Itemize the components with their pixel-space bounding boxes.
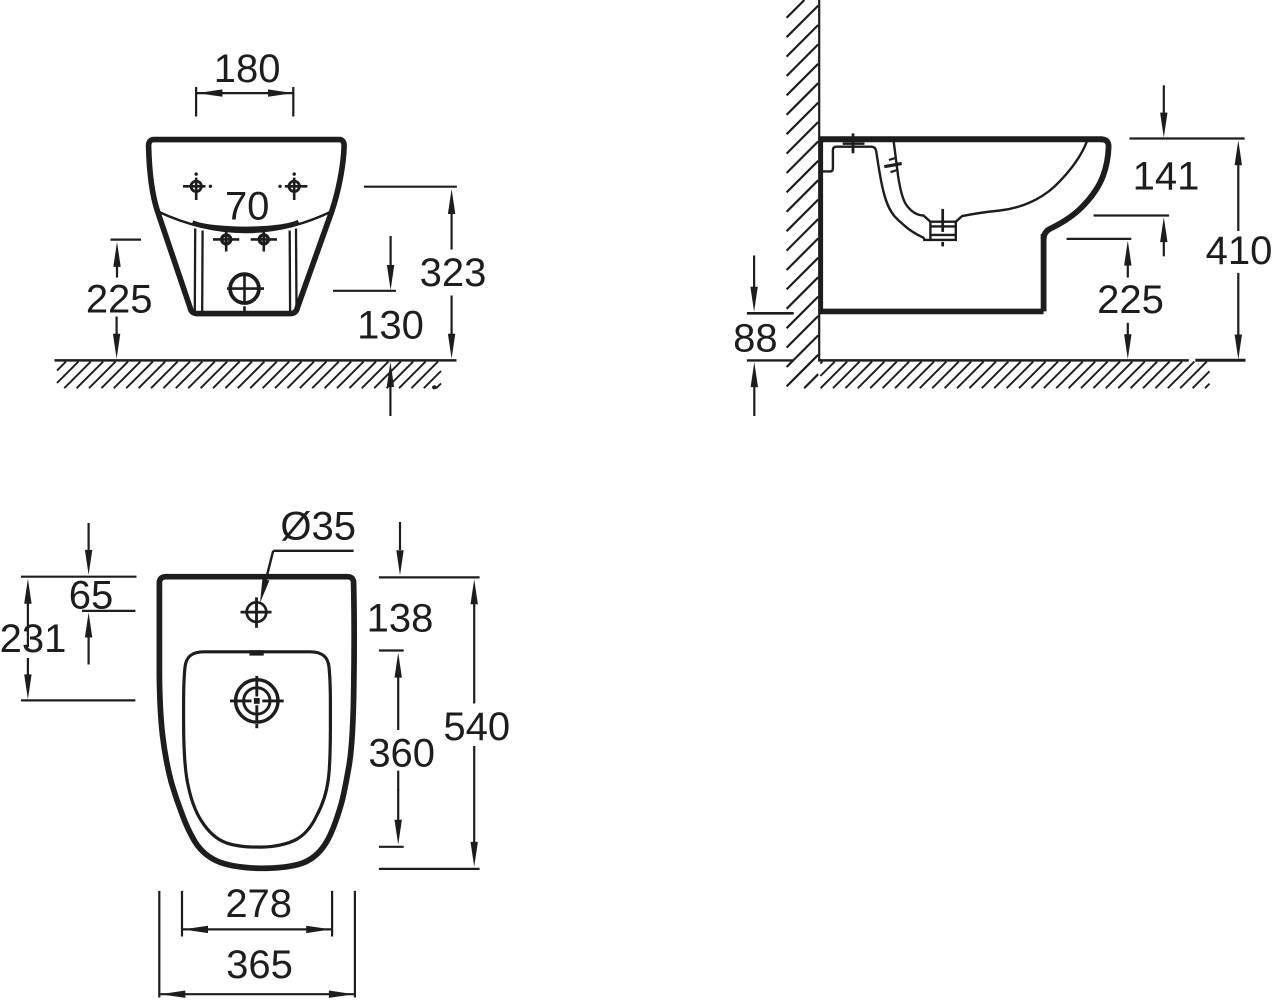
svg-text:130: 130 <box>357 304 424 348</box>
svg-text:141: 141 <box>1133 154 1200 198</box>
svg-text:225: 225 <box>86 277 153 321</box>
svg-text:180: 180 <box>214 47 281 91</box>
svg-text:88: 88 <box>733 316 778 360</box>
svg-text:360: 360 <box>368 732 435 776</box>
svg-text:540: 540 <box>443 705 510 749</box>
svg-text:65: 65 <box>69 573 114 617</box>
svg-text:225: 225 <box>1097 278 1164 322</box>
svg-text:278: 278 <box>225 882 292 926</box>
svg-text:231: 231 <box>0 617 66 661</box>
svg-text:365: 365 <box>226 943 293 987</box>
svg-text:410: 410 <box>1206 229 1272 273</box>
svg-text:323: 323 <box>420 251 487 295</box>
svg-text:70: 70 <box>225 184 270 228</box>
svg-text:Ø35: Ø35 <box>280 504 356 548</box>
svg-text:138: 138 <box>367 596 434 640</box>
